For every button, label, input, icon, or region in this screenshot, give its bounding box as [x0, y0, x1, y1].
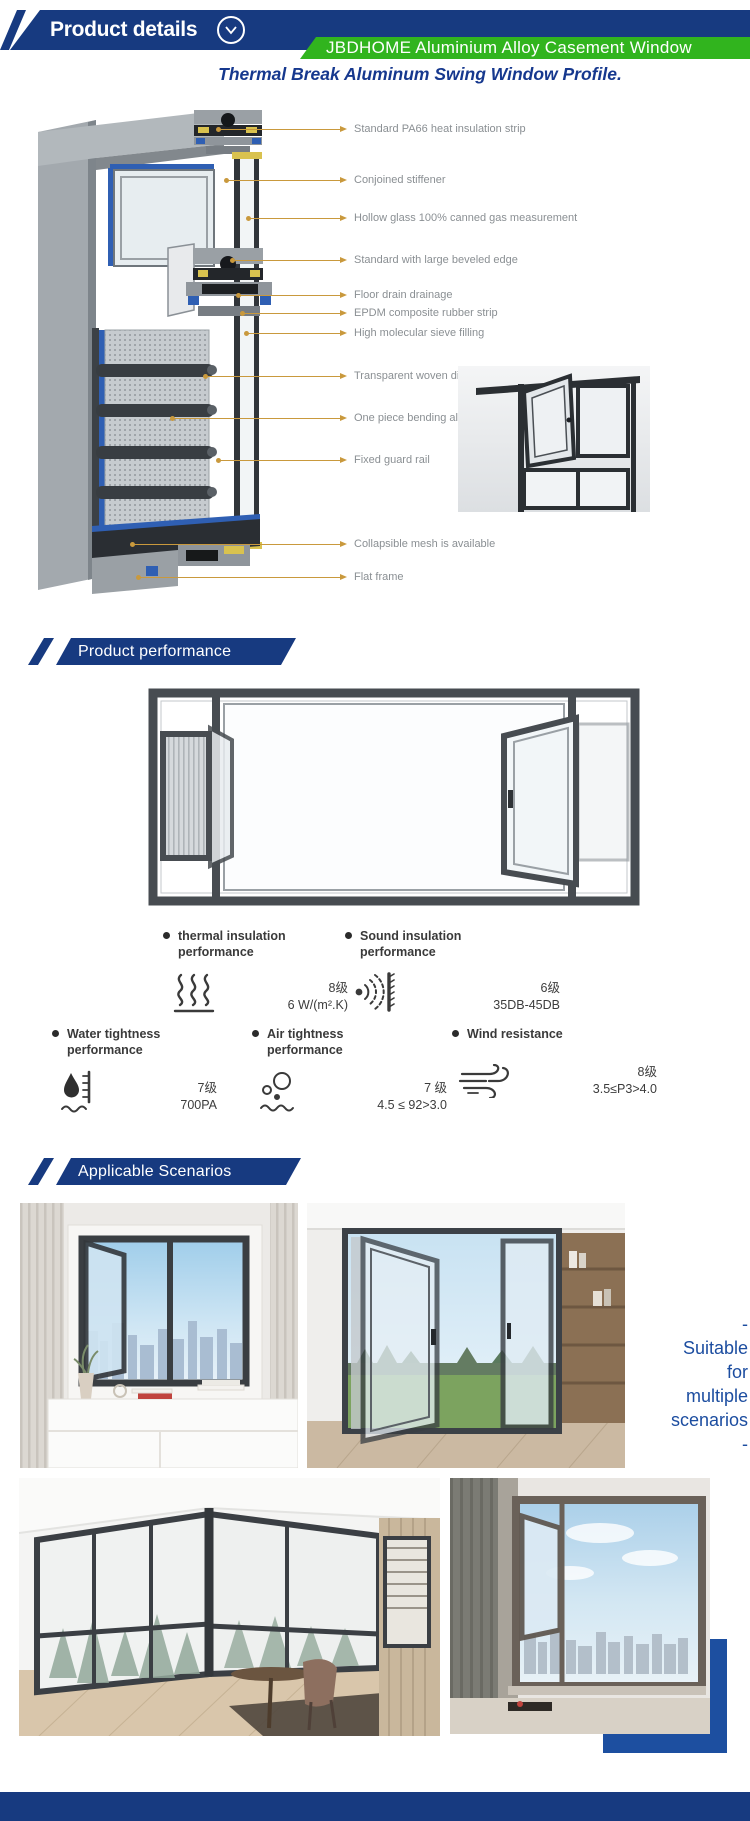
bullet-icon — [163, 932, 170, 939]
performance-window-illustration — [148, 688, 640, 906]
section-slash-decoration — [28, 1158, 54, 1185]
sound-waves-icon — [351, 970, 399, 1014]
callout-line — [218, 460, 340, 461]
metric-wind-resistance: Wind resistance 8级 3.5≤P3>4.0 — [452, 1026, 657, 1098]
callout: Floor drain drainage — [238, 289, 452, 301]
heat-waves-icon — [169, 970, 221, 1014]
bullet-icon — [52, 1030, 59, 1037]
scenarios-caption-line: scenarios — [612, 1408, 748, 1432]
callout-label: Floor drain drainage — [354, 289, 452, 301]
metric-sound-insulation: Sound insulation performance — [345, 928, 560, 1014]
callout-label: Conjoined stiffener — [354, 174, 446, 186]
metric-grade: 7 级 — [302, 1080, 447, 1097]
product-detail-page: Product details JBDHOME Aluminium Alloy … — [0, 0, 750, 1821]
callout: Hollow glass 100% canned gas measurement — [248, 212, 577, 224]
metric-label: Air tightness performance — [252, 1026, 392, 1058]
callout-label: Standard PA66 heat insulation strip — [354, 123, 526, 135]
metric-grade: 7级 — [104, 1080, 217, 1097]
scenario-photo-city-view-window — [450, 1478, 710, 1734]
profile-cutaway-section: Standard PA66 heat insulation strip Conj… — [0, 0, 750, 612]
callout-line — [226, 180, 340, 181]
metric-grade: 8级 — [512, 1064, 657, 1081]
callout-line — [205, 376, 340, 377]
metric-label: Wind resistance — [452, 1026, 627, 1042]
callout-line — [242, 313, 340, 314]
callout: Conjoined stiffener — [226, 174, 446, 186]
section-title-performance: Product performance — [56, 638, 296, 665]
wind-icon — [458, 1064, 512, 1098]
bullet-icon — [345, 932, 352, 939]
metric-label: thermal insulation performance — [163, 928, 313, 960]
scenario-photo-patio-doors — [307, 1203, 625, 1468]
section-slash-decoration — [28, 638, 54, 665]
metric-label: Sound insulation performance — [345, 928, 500, 960]
callout-label: Collapsible mesh is available — [354, 538, 495, 550]
callout: Fixed guard rail — [218, 454, 430, 466]
air-bubbles-icon — [258, 1068, 302, 1114]
callout: High molecular sieve filling — [246, 327, 484, 339]
metric-grade: 8级 — [221, 980, 348, 997]
metric-value: 700PA — [104, 1097, 217, 1114]
scenarios-caption-line: multiple — [612, 1384, 748, 1408]
metric-value: 4.5 ≤ 92>3.0 — [302, 1097, 447, 1114]
scenario-photo-casement-window-desk — [20, 1203, 298, 1468]
metric-value: 35DB-45DB — [399, 997, 560, 1014]
footer-band — [0, 1792, 750, 1821]
callout-label: Fixed guard rail — [354, 454, 430, 466]
callout: EPDM composite rubber strip — [242, 307, 498, 319]
bullet-icon — [252, 1030, 259, 1037]
bullet-icon — [452, 1030, 459, 1037]
callout-line — [248, 218, 340, 219]
metric-grade: 6级 — [399, 980, 560, 997]
scenarios-caption-line: for — [612, 1360, 748, 1384]
metric-value: 6 W/(m².K) — [221, 997, 348, 1014]
water-drop-gauge-icon — [58, 1068, 104, 1114]
scenarios-caption-line: Suitable — [612, 1336, 748, 1360]
section-title-scenarios: Applicable Scenarios — [56, 1158, 301, 1185]
callout-line — [172, 418, 340, 419]
callout-line — [246, 333, 340, 334]
callout-line — [138, 577, 340, 578]
callout: Collapsible mesh is available — [132, 538, 495, 550]
scenario-photo-corner-window — [19, 1478, 440, 1736]
metric-water-tightness: Water tightness performance 7级 700PA — [52, 1026, 217, 1114]
scenarios-caption: - Suitable for multiple scenarios - — [612, 1312, 748, 1456]
callout: Standard PA66 heat insulation strip — [218, 123, 526, 135]
callout-line — [218, 129, 340, 130]
callout-label: Hollow glass 100% canned gas measurement — [354, 212, 577, 224]
metric-label: Water tightness performance — [52, 1026, 187, 1058]
scenarios-caption-line: - — [612, 1432, 748, 1456]
callout-line — [232, 260, 340, 261]
callout-line — [132, 544, 340, 545]
scenarios-caption-line: - — [612, 1312, 748, 1336]
metric-value: 3.5≤P3>4.0 — [512, 1081, 657, 1098]
callout-line — [238, 295, 340, 296]
callout-label: High molecular sieve filling — [354, 327, 484, 339]
callout: Flat frame — [138, 571, 404, 583]
callout: Standard with large beveled edge — [232, 254, 518, 266]
callout-label: EPDM composite rubber strip — [354, 307, 498, 319]
callout-label: Standard with large beveled edge — [354, 254, 518, 266]
callout-label: Flat frame — [354, 571, 404, 583]
metric-air-tightness: Air tightness performance 7 级 4.5 ≤ 92>3… — [252, 1026, 447, 1114]
casement-window-sample-photo — [458, 366, 650, 512]
metric-thermal-insulation: thermal insulation performance 8级 6 W/(m… — [163, 928, 348, 1014]
